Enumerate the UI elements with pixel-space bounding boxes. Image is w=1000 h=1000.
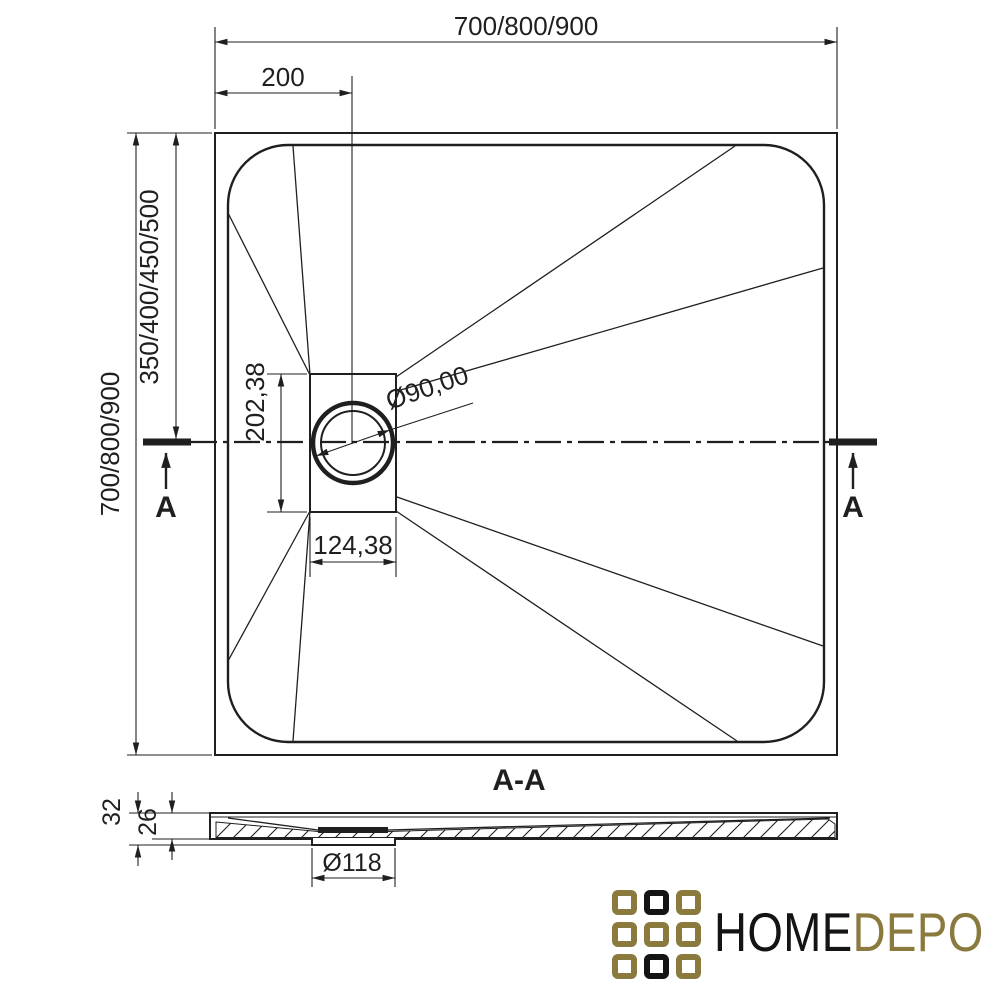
- section-view: A-A 32 26 Ø118: [98, 764, 837, 887]
- brand-wordmark: HOMEDEPO: [714, 905, 984, 960]
- logo-square-icon: [644, 890, 669, 915]
- dim-drain-plate-width: 124,38: [310, 517, 396, 577]
- dim-section-body-height: 26: [134, 792, 209, 860]
- dim-drain-offset-x: 200: [215, 62, 352, 93]
- dim-drain-offset-y: 350/400/450/500: [134, 133, 176, 439]
- dim-overall-width: 700/800/900: [215, 11, 837, 129]
- technical-drawing-page: A A 700/800/900 200 700/800/900 350/400/…: [0, 0, 1000, 1000]
- section-label-left: A: [155, 491, 177, 524]
- logo-square-icon: [676, 922, 701, 947]
- dim-drain-offset-y-text: 350/400/450/500: [134, 189, 164, 384]
- dim-section-drain-hole-text: Ø118: [322, 849, 381, 877]
- dim-overall-height-text: 700/800/900: [95, 372, 125, 517]
- brand-logo-grid-icon: [612, 890, 701, 979]
- dim-drain-plate-height-text: 202,38: [240, 362, 270, 442]
- tray-outer-edge: [215, 133, 837, 755]
- section-drain-flange: [318, 827, 388, 833]
- logo-square-icon: [676, 954, 701, 979]
- brand-name-second: DEPO: [853, 901, 984, 963]
- logo-square-icon: [612, 954, 637, 979]
- dim-section-drain-hole: Ø118: [312, 848, 395, 887]
- top-view: A A 700/800/900 200 700/800/900 350/400/…: [95, 11, 878, 755]
- section-title: A-A: [492, 764, 545, 797]
- logo-square-icon: [612, 890, 637, 915]
- dim-drain-offset-x-text: 200: [261, 62, 304, 92]
- logo-square-icon: [644, 922, 669, 947]
- logo-square-icon: [612, 922, 637, 947]
- brand-name-first: HOME: [714, 901, 853, 963]
- dim-drain-plate-height: 202,38: [240, 362, 307, 512]
- dim-section-body-height-text: 26: [134, 808, 162, 836]
- logo-square-icon: [644, 954, 669, 979]
- section-label-right: A: [842, 491, 864, 524]
- dim-section-overall-height-text: 32: [98, 798, 126, 826]
- logo-square-icon: [676, 890, 701, 915]
- shower-tray-drawing: A A 700/800/900 200 700/800/900 350/400/…: [0, 0, 1000, 1000]
- dim-drain-plate-width-text: 124,38: [313, 530, 393, 560]
- dim-overall-width-text: 700/800/900: [454, 11, 599, 41]
